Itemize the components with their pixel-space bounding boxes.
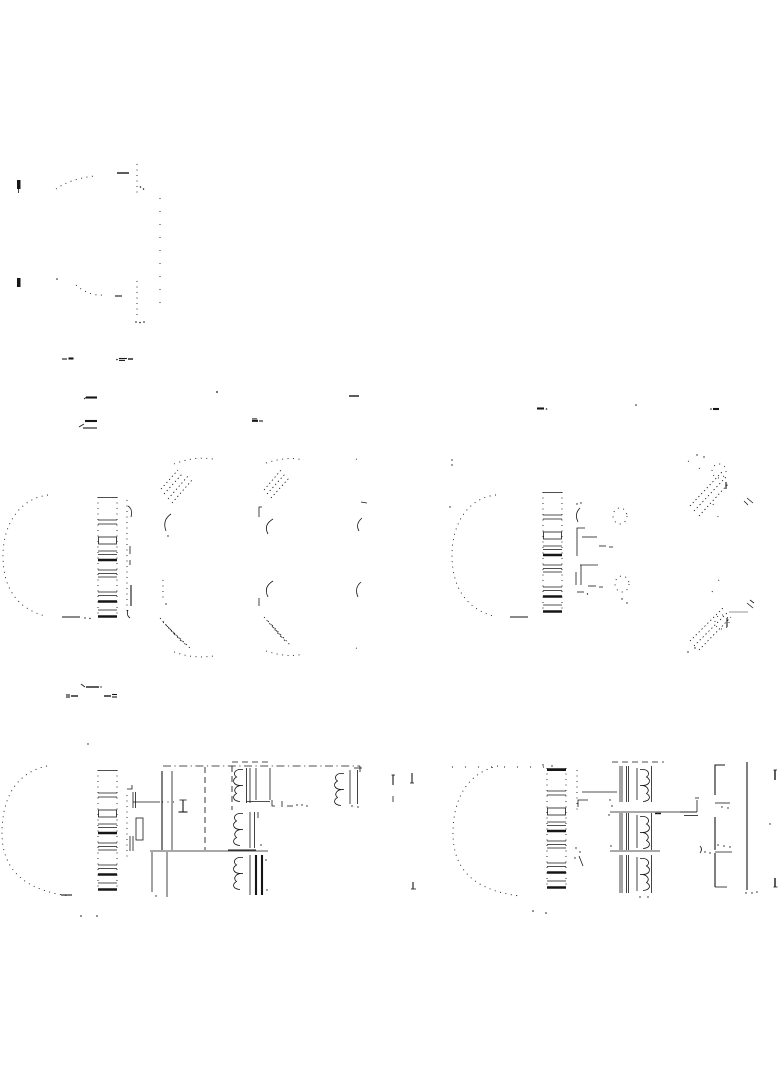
stack-side-brackets-right [574,770,588,866]
right-edge-tick-marks [769,770,777,887]
lens-plate-2 [259,459,304,656]
lead-line-T [133,800,188,812]
drawing-sheet [0,0,784,1066]
right-tick-marks [392,773,417,889]
figure-exploded-left [3,458,368,657]
figure-profile-view [17,164,160,323]
mid-marks [282,801,308,807]
figure-exploded-right [449,454,754,652]
coil-unit-outboard [335,768,362,808]
figure-section-left [2,743,416,917]
bracket-column [700,765,732,887]
lens-plate-3-partial [356,459,368,652]
caption-marks-top [62,359,719,429]
fastener-hardware [576,502,629,603]
coil-unit-right-1 [612,762,664,802]
stack-side-brackets [127,785,143,860]
figure-section-right [452,762,778,914]
caption-marks-middle [66,684,117,697]
stack-side-hooks [127,500,132,618]
hatched-pin-top [688,454,753,527]
coil-unit-3 [234,855,268,895]
lens-plate-1 [160,458,213,657]
hatched-pin-bottom [687,578,754,653]
coil-unit-2 [234,812,262,848]
connector-elbow [680,798,699,816]
coil-unit-right-3 [620,855,652,898]
coil-unit-1 [232,762,275,806]
figures-layer [0,0,784,1066]
coil-unit-right-2 [610,812,697,850]
